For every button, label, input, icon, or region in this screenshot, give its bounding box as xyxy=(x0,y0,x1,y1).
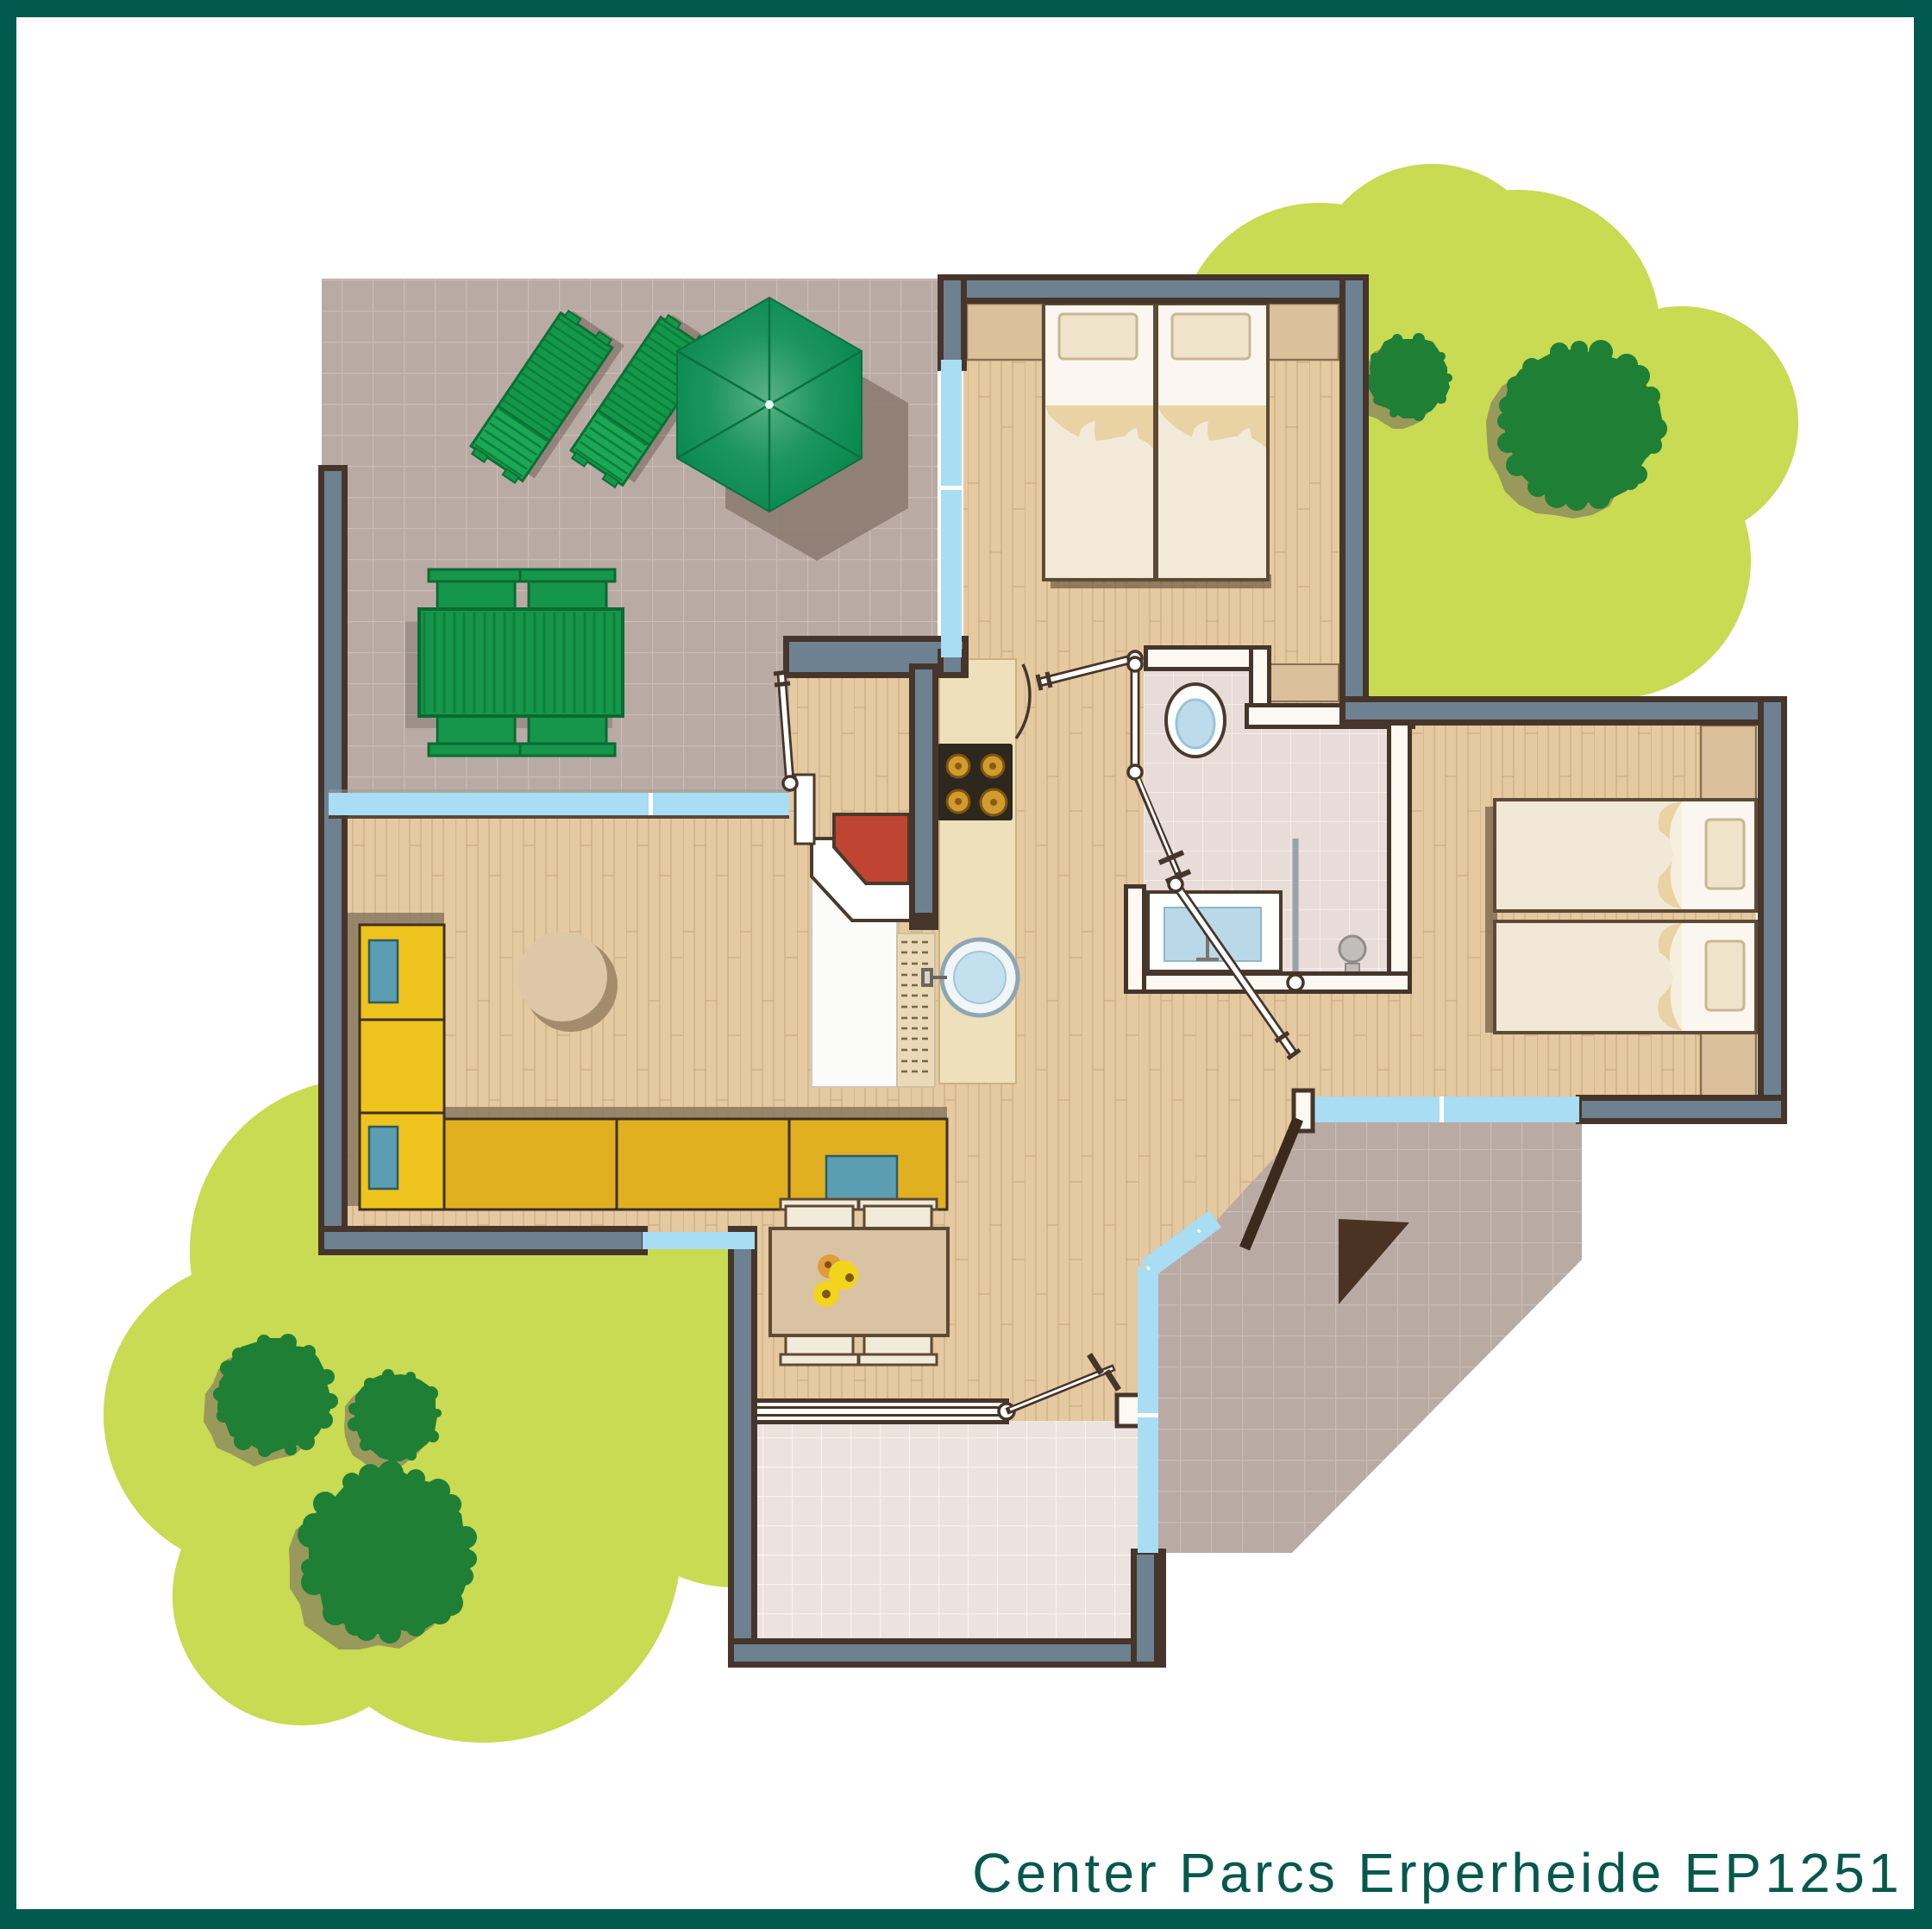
svg-text:Center Parcs Erperheide EP1251: Center Parcs Erperheide EP1251 xyxy=(972,1842,1903,1904)
